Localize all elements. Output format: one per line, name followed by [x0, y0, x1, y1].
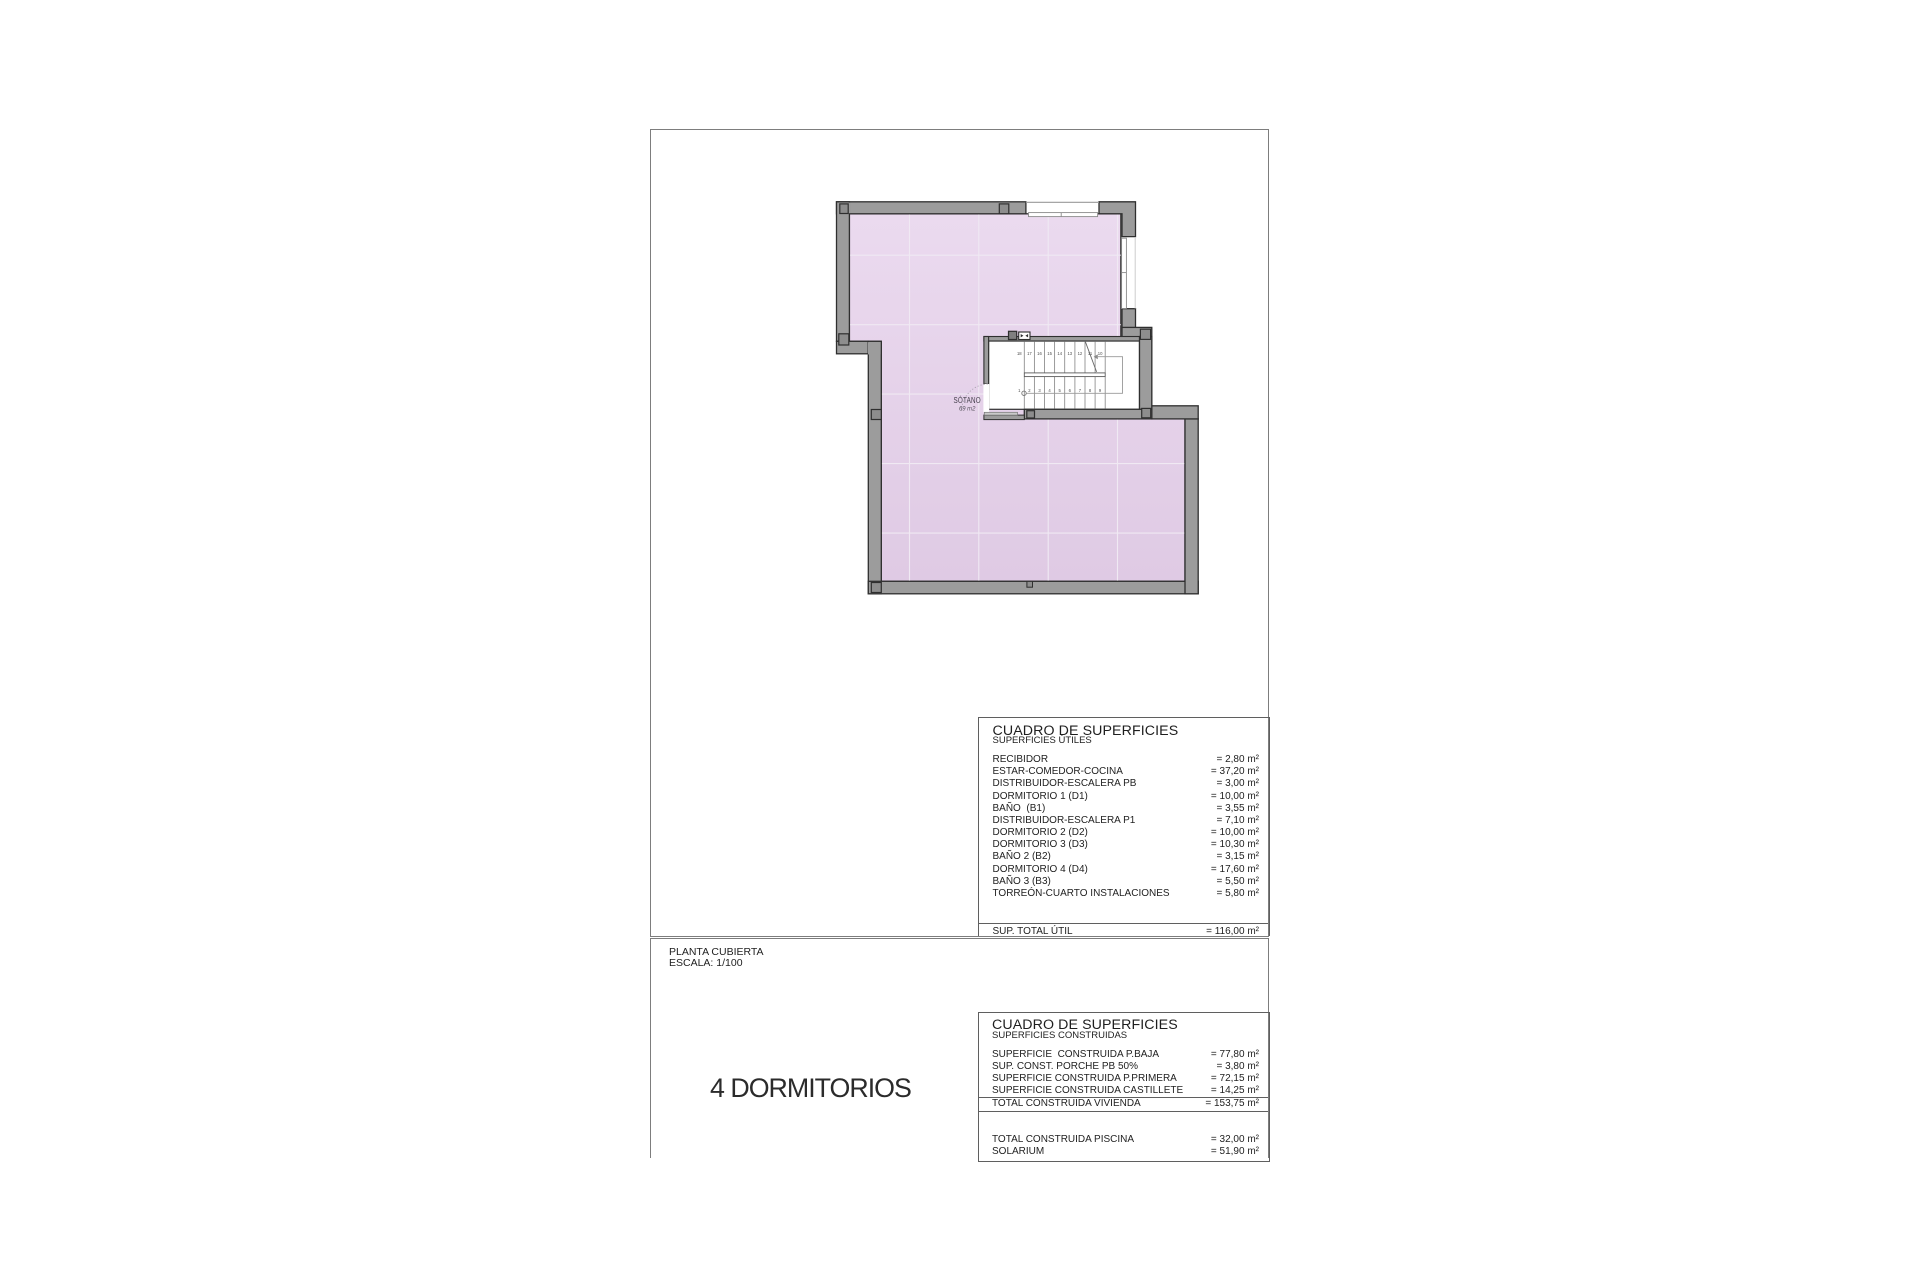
- svg-text:SÓTANO: SÓTANO: [953, 395, 981, 405]
- svg-text:69 m2: 69 m2: [959, 407, 976, 413]
